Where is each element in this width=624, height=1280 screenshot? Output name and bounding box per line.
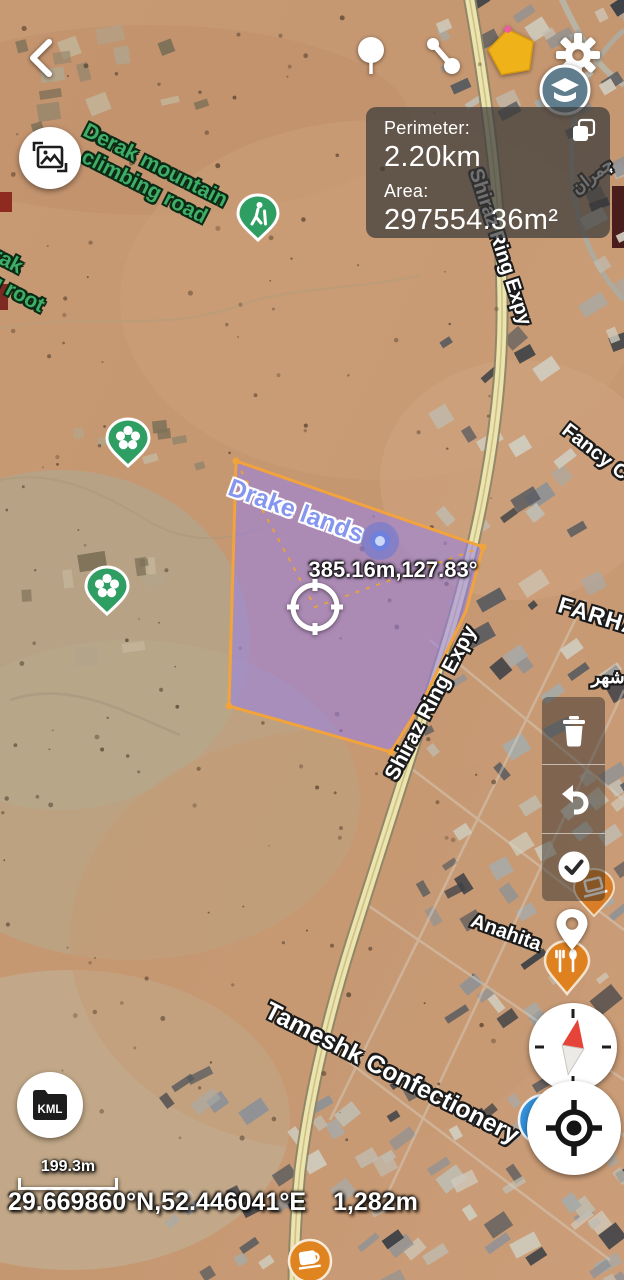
park-poi-pin[interactable] [84, 565, 130, 617]
measurement-panel: Perimeter: 2.20km Area: 297554.36m² [366, 107, 610, 238]
kml-folder-icon: KML [29, 1087, 71, 1123]
check-circle-icon [557, 850, 591, 884]
polygon-tool-button[interactable] [482, 22, 542, 84]
elevation-value: 1,282m [333, 1188, 418, 1216]
my-location-button[interactable] [527, 1081, 621, 1175]
back-button[interactable] [22, 36, 62, 80]
gps-target-icon [543, 1097, 605, 1159]
confirm-button[interactable] [542, 834, 605, 901]
park-poi-pin[interactable] [105, 417, 151, 469]
trash-icon [559, 714, 589, 748]
marker-tool-button[interactable] [352, 32, 390, 78]
scale-value: 199.3m [18, 1158, 118, 1176]
area-label: Area: [384, 181, 596, 202]
perimeter-label: Perimeter: [384, 118, 596, 139]
copy-icon[interactable] [570, 117, 598, 145]
kml-export-button[interactable]: KML [17, 1072, 83, 1138]
placed-marker-pin[interactable] [552, 907, 592, 953]
hiking-poi-pin[interactable] [236, 193, 280, 243]
undo-icon [557, 783, 591, 815]
compass-icon [529, 1003, 617, 1091]
distance-measure-tool-button[interactable] [420, 32, 466, 80]
compass-button[interactable] [529, 1003, 617, 1091]
area-value: 297554.36m² [384, 204, 596, 237]
svg-text:KML: KML [38, 1104, 63, 1116]
map-center-crosshair-icon [283, 575, 347, 639]
map-scale: 199.3m [18, 1158, 118, 1190]
image-icon [30, 139, 70, 177]
coordinates-value: 29.669860°N,52.446041°E [8, 1188, 306, 1216]
undo-button[interactable] [542, 765, 605, 833]
cafe-poi-badge[interactable] [286, 1237, 334, 1280]
photo-note-button[interactable] [19, 127, 81, 189]
coordinates-bar: 29.669860°N,52.446041°E1,282m [8, 1188, 418, 1217]
app-screen: Derak mountain climbing road Derak climb… [0, 0, 624, 1280]
edit-toolbar [542, 697, 605, 901]
perimeter-value: 2.20km [384, 141, 596, 174]
delete-button[interactable] [542, 697, 605, 765]
